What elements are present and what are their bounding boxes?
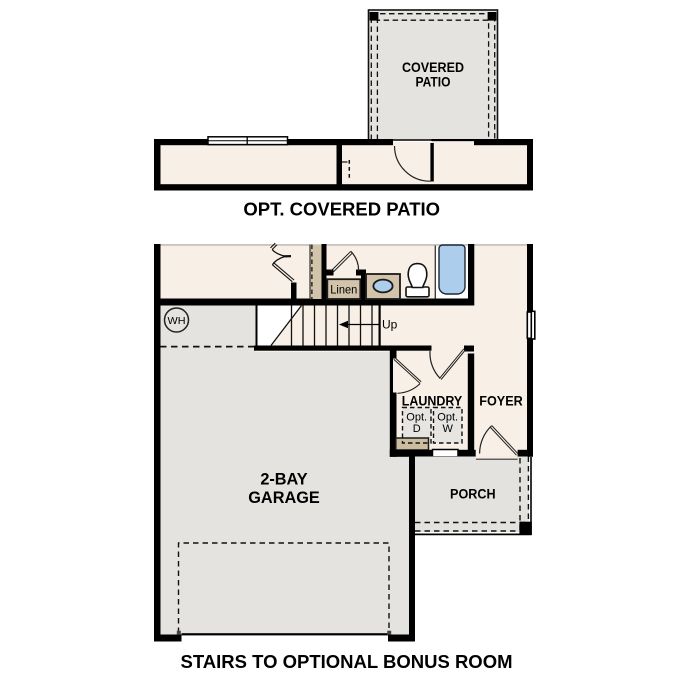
svg-text:PATIO: PATIO	[416, 74, 451, 89]
svg-text:PORCH: PORCH	[450, 487, 496, 502]
svg-text:Up: Up	[382, 317, 398, 331]
svg-text:Opt.: Opt.	[437, 412, 458, 424]
svg-text:GARAGE: GARAGE	[248, 489, 320, 507]
svg-text:Opt.: Opt.	[406, 412, 427, 424]
svg-text:COVERED: COVERED	[402, 60, 464, 75]
svg-text:W: W	[443, 423, 454, 435]
svg-text:2-BAY: 2-BAY	[260, 471, 307, 489]
svg-text:WH: WH	[168, 315, 186, 327]
svg-text:STAIRS TO OPTIONAL BONUS ROOM: STAIRS TO OPTIONAL BONUS ROOM	[181, 651, 513, 672]
svg-text:D: D	[413, 423, 421, 435]
svg-text:Linen: Linen	[330, 283, 357, 297]
svg-text:FOYER: FOYER	[479, 394, 523, 409]
svg-text:LAUNDRY: LAUNDRY	[402, 394, 463, 409]
svg-text:OPT. COVERED PATIO: OPT. COVERED PATIO	[243, 198, 440, 219]
